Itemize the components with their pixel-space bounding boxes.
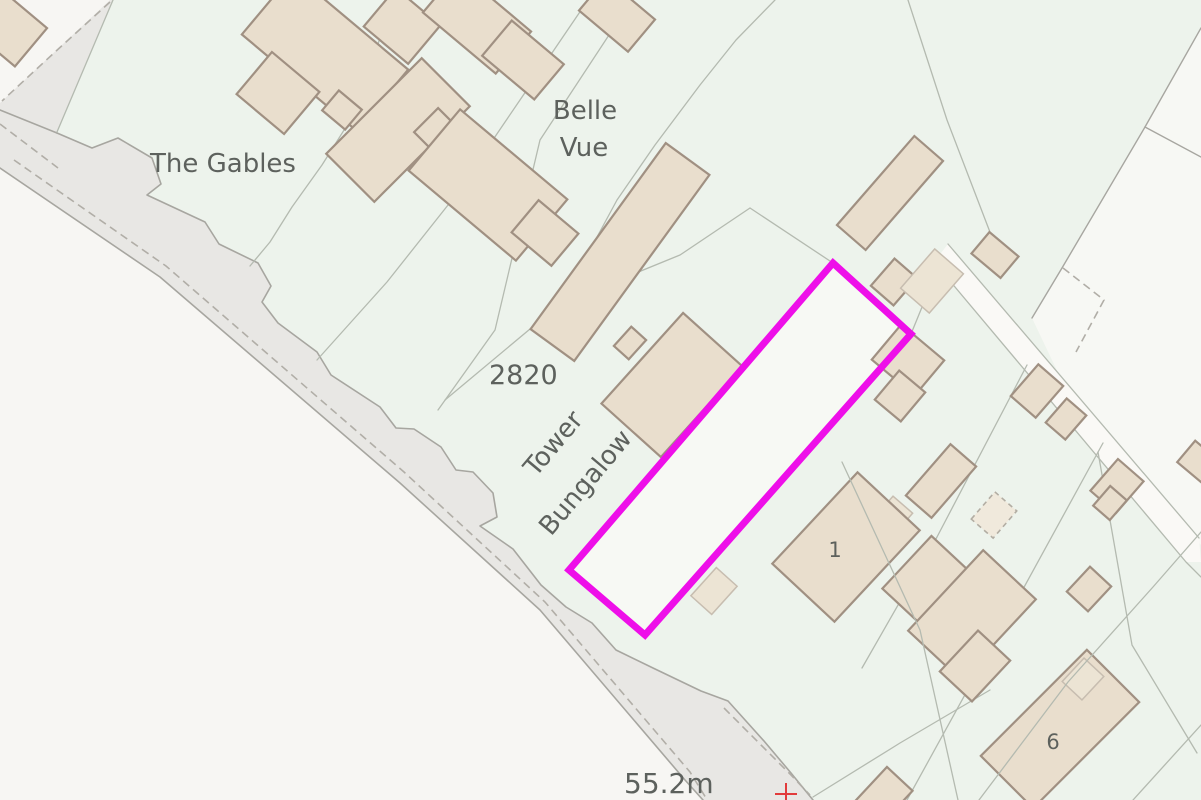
- label-the-gables: The Gables: [149, 149, 296, 179]
- label-house-1: 1: [828, 538, 841, 562]
- label-2820: 2820: [489, 360, 558, 391]
- label-belle: Belle: [553, 96, 617, 126]
- label-spot-height: 55.2m: [624, 767, 714, 800]
- map-viewport[interactable]: The GablesBelleVue2820TowerBungalow55.2m…: [0, 0, 1201, 800]
- label-house-6: 6: [1046, 730, 1059, 754]
- label-vue: Vue: [560, 133, 609, 163]
- site-plan-map: The GablesBelleVue2820TowerBungalow55.2m…: [0, 0, 1201, 800]
